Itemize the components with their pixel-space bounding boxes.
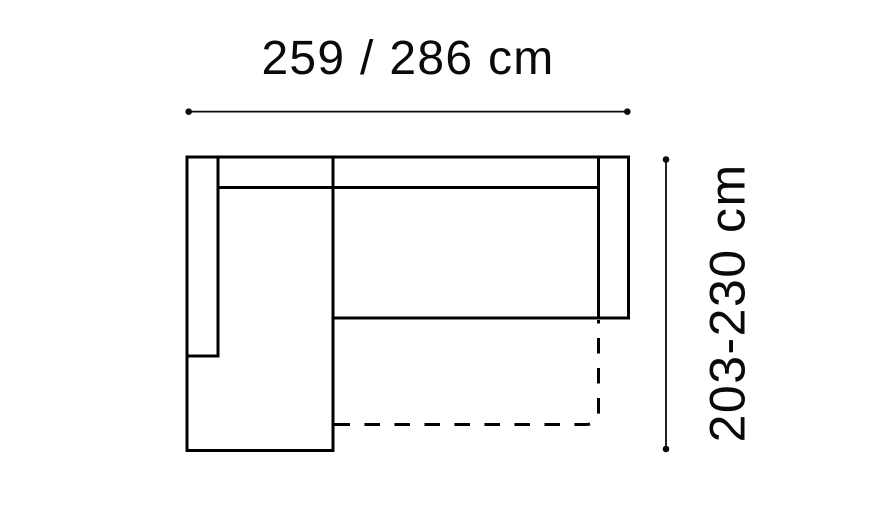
- svg-text:203-230 cm: 203-230 cm: [700, 163, 756, 442]
- svg-text:259 / 286 cm: 259 / 286 cm: [261, 32, 554, 85]
